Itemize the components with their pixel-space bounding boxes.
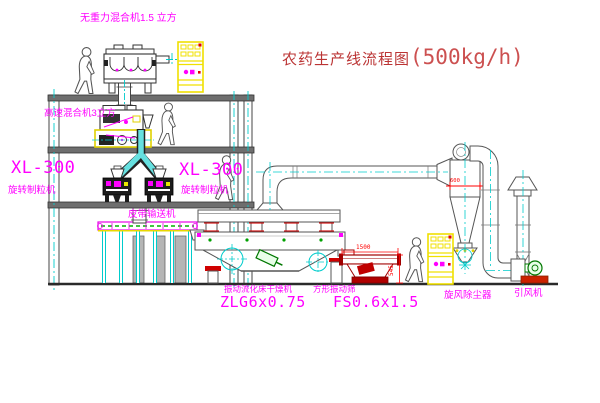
control-cabinet-ground	[428, 234, 453, 284]
process-flow-diagram: 农药生产线流程图(500kg/h) 无重力混合机1.5 立方 高速混合机3立方 …	[0, 0, 600, 403]
belt-conveyor-label: 皮带输送机	[128, 210, 176, 220]
cyclone-dimension: 600	[450, 179, 460, 185]
cyclone-label: 旋风除尘器	[444, 291, 492, 301]
screen-length-dimension: 1500	[356, 245, 370, 251]
gravity-mixer-label: 无重力混合机1.5 立方	[80, 14, 177, 24]
exhaust-duct-drawing	[256, 158, 452, 211]
gravity-mixer-drawing	[104, 45, 178, 112]
granulator-left-model: XL-300	[11, 160, 75, 177]
high-speed-mixer-label: 高速混合机3立方	[44, 109, 116, 119]
person-roof	[75, 48, 94, 94]
dryer-model-label: ZLG6x0.75	[220, 295, 306, 310]
granulator-left-name: 旋转制粒机	[8, 186, 56, 196]
fluid-bed-dryer-drawing	[190, 210, 346, 283]
screen-model-label: FS0.6x1.5	[333, 295, 419, 310]
fan-label: 引风机	[514, 289, 543, 299]
title-text: 农药生产线流程图	[282, 51, 410, 68]
person-second-floor	[158, 103, 175, 145]
title-capacity: (500kg/h)	[410, 45, 524, 69]
granulator-right-model: XL-300	[179, 162, 243, 179]
control-cabinet-roof	[178, 42, 203, 92]
granulator-right-name: 旋转制粒机	[181, 186, 229, 196]
screen-height-dimension: 545	[389, 265, 395, 276]
person-ground	[406, 238, 424, 282]
diagram-title: 农药生产线流程图(500kg/h)	[282, 47, 524, 68]
